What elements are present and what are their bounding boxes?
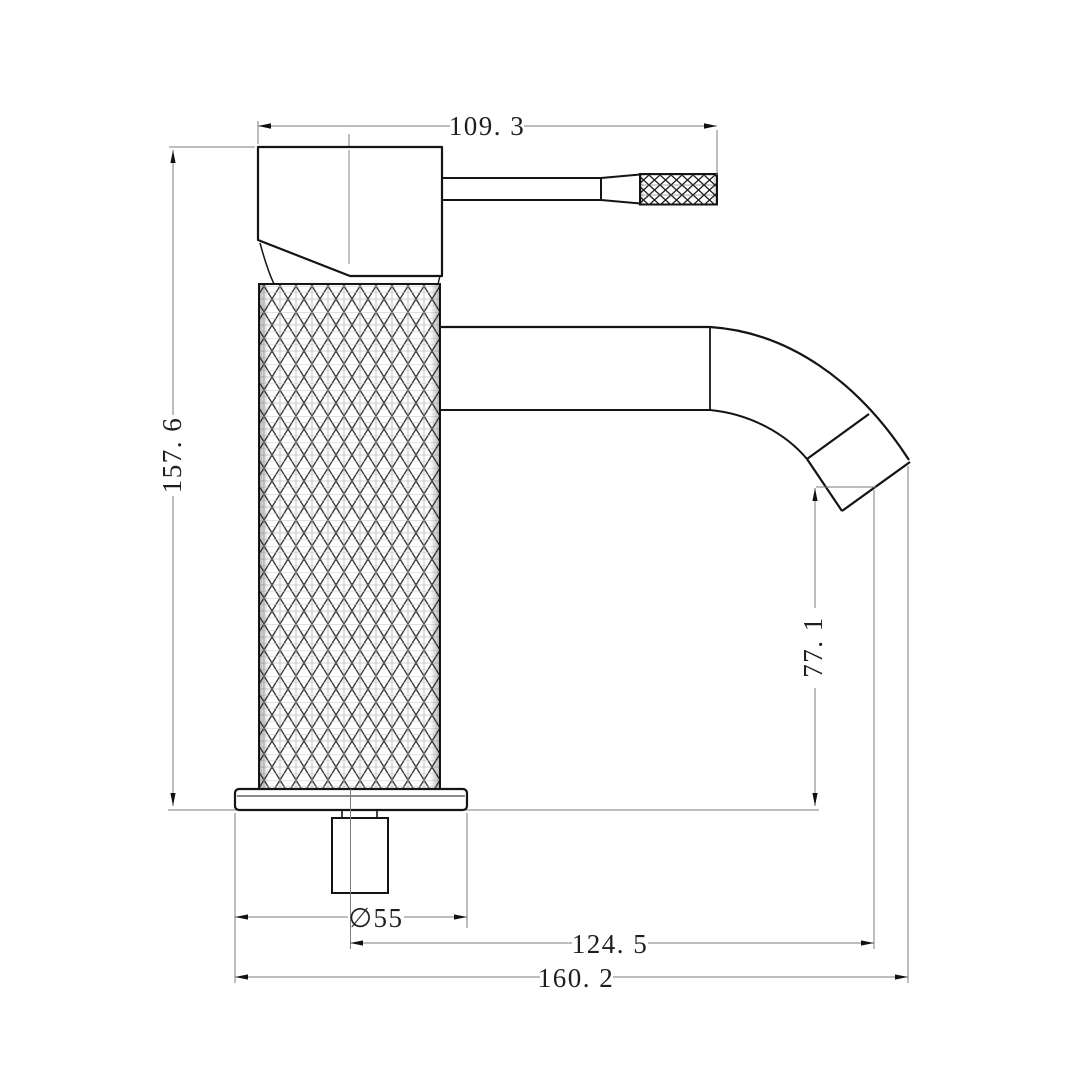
dim-base-diameter-label: ∅55	[348, 903, 403, 933]
faucet-technical-drawing: 109. 3 157. 6 77. 1	[0, 0, 1080, 1080]
sheet-background	[0, 0, 1080, 1080]
dim-handle-reach-label: 109. 3	[449, 111, 526, 141]
dim-overall-height-label: 157. 6	[157, 417, 187, 494]
lever-knurl-shading	[640, 174, 717, 205]
dim-overall-reach-label: 160. 2	[538, 963, 615, 993]
body-knurl-shading	[259, 284, 440, 789]
mounting-shank	[332, 810, 388, 893]
shank-body	[332, 818, 388, 893]
dim-outlet-height-label: 77. 1	[798, 616, 828, 678]
drawing-sheet: 109. 3 157. 6 77. 1	[0, 0, 1080, 1080]
dim-outlet-reach-label: 124. 5	[572, 929, 649, 959]
